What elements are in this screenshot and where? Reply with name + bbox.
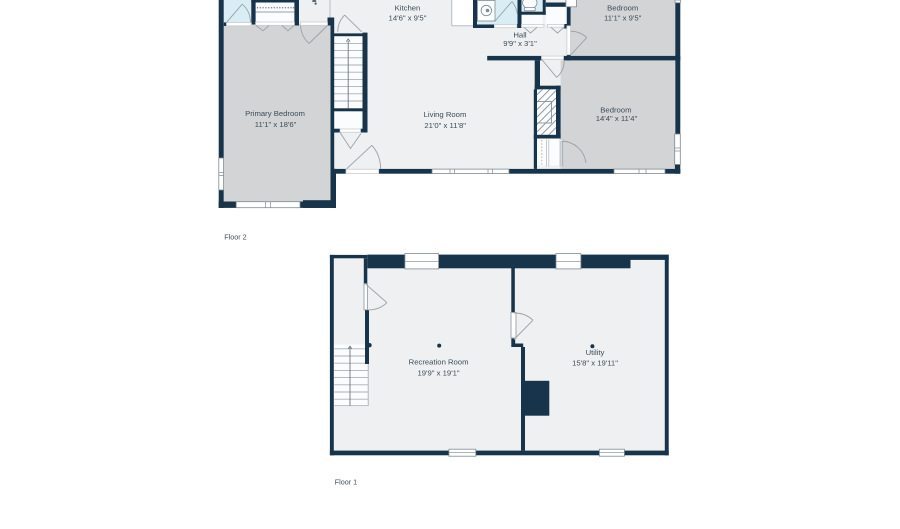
- svg-text:Recreation Room: Recreation Room: [409, 358, 469, 367]
- svg-text:9'9" x 3'1": 9'9" x 3'1": [503, 39, 537, 48]
- svg-text:Living Room: Living Room: [424, 110, 467, 119]
- svg-text:Bedroom: Bedroom: [607, 3, 638, 12]
- svg-text:19'9" x 19'1": 19'9" x 19'1": [418, 368, 460, 377]
- svg-text:11'1" x 18'6": 11'1" x 18'6": [255, 120, 297, 129]
- svg-text:15'8" x 19'11": 15'8" x 19'11": [572, 358, 618, 367]
- svg-text:14'4" x 11'4": 14'4" x 11'4": [596, 114, 638, 123]
- svg-text:Kitchen: Kitchen: [395, 3, 421, 12]
- svg-text:21'0" x 11'8": 21'0" x 11'8": [424, 121, 466, 130]
- svg-text:Primary Bedroom: Primary Bedroom: [245, 109, 305, 118]
- svg-text:Floor 2: Floor 2: [224, 233, 246, 242]
- svg-text:14'6" x 9'5": 14'6" x 9'5": [389, 14, 427, 23]
- svg-text:11'1" x 9'5": 11'1" x 9'5": [604, 14, 642, 23]
- svg-text:Bedroom: Bedroom: [600, 105, 631, 114]
- svg-text:Utility: Utility: [586, 348, 605, 357]
- svg-text:Floor 1: Floor 1: [335, 478, 357, 487]
- svg-text:Hall: Hall: [513, 30, 527, 39]
